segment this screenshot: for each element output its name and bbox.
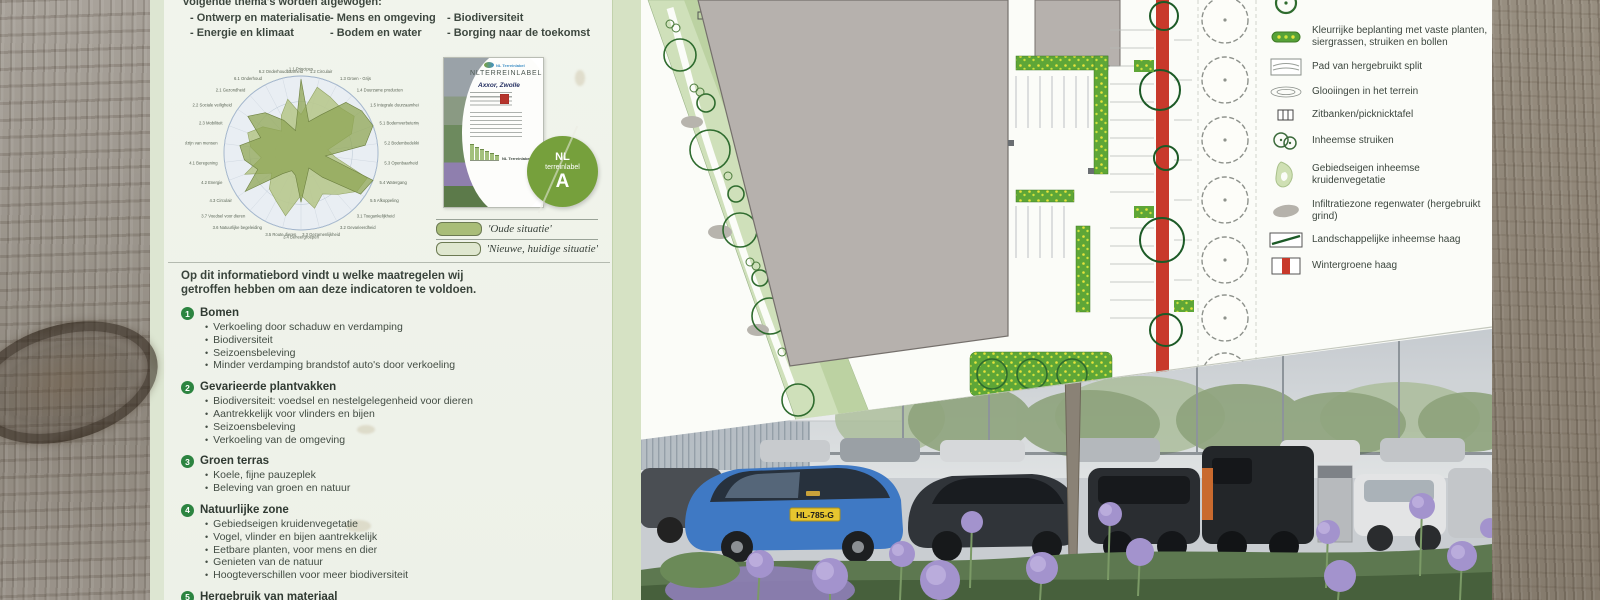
map-legend-item: Gebiedseigen inheemse kruidenvegetatie [1268, 160, 1492, 190]
colorful-bed-icon [1268, 31, 1304, 43]
series-legend-row: 'Nieuwe, huidige situatie' [436, 239, 598, 259]
mini-bar-chart [470, 144, 499, 161]
bullet-item: •Beleving van groen en natuur [205, 482, 611, 495]
bullet-icon: • [205, 556, 208, 569]
measures-list: 1Bomen•Verkoeling door schaduw en verdam… [181, 306, 611, 600]
radar-axis-label: 2.3 Mobiliteit [199, 121, 223, 126]
bullet-item: •Seizoensbeleving [205, 347, 611, 360]
radar-axis-label: 5.1 Bodemverbetering [380, 121, 420, 126]
map-legend-item: Landschappelijke inheemse haag [1268, 232, 1492, 248]
section-title: Hergebruik van materiaal [200, 590, 337, 600]
theme-item: - Mens en omgeving [330, 11, 447, 26]
measures-section: Op dit informatiebord vindt u welke maat… [181, 269, 611, 600]
bullet-item: •Gebiedseigen kruidenvegetatie [205, 518, 611, 531]
path-split-icon [1268, 58, 1304, 76]
license-plate: HL-785-G [796, 510, 834, 520]
chart-series-legend: 'Oude situatie''Nieuwe, huidige situatie… [436, 219, 598, 259]
theme-column: - Mens en omgeving- Bodem en water [330, 11, 447, 41]
section-header: 1Bomen [181, 306, 611, 321]
map-legend-item [1268, 0, 1492, 16]
bullet-text: Gebiedseigen kruidenvegetatie [213, 518, 358, 531]
map-legend-label: Glooiingen in het terrein [1312, 86, 1418, 98]
bullet-icon: • [205, 421, 208, 434]
bullet-text: Beleving van groen en natuur [213, 482, 350, 495]
stain [575, 70, 585, 86]
bullet-icon: • [205, 544, 208, 557]
tree-circle-icon [1268, 0, 1304, 16]
badge-grade: A [556, 172, 570, 192]
bullet-item: •Genieten van de natuur [205, 556, 611, 569]
section-title: Natuurlijke zone [200, 503, 289, 518]
certificate-subtitle: Axxor, Zwolle [478, 82, 540, 89]
bullet-text: Koele, fijne pauzeplek [213, 469, 316, 482]
bullet-text: Genieten van de natuur [213, 556, 323, 569]
bullet-icon: • [205, 434, 208, 447]
bullet-text: Eetbare planten, voor mens en dier [213, 544, 377, 557]
map-legend-item: Inheemse struiken [1268, 131, 1492, 151]
series-label: 'Nieuwe, huidige situatie' [487, 243, 598, 255]
theme-item: - Energie en klimaat [190, 26, 330, 41]
measures-intro: Op dit informatiebord vindt u welke maat… [181, 269, 511, 297]
theme-list: - Ontwerp en materialisatie- Energie en … [190, 11, 607, 41]
bullet-text: Seizoensbeleving [213, 347, 295, 360]
intro-line: volgende thema's worden afgewogen: [183, 0, 613, 8]
blue-car: HL-785-G [685, 465, 903, 563]
theme-column: - Biodiversiteit- Borging naar de toekom… [447, 11, 607, 41]
section-title: Gevarieerde plantvakken [200, 380, 336, 395]
section-header: 2Gevarieerde plantvakken [181, 380, 611, 395]
section-number-badge: 3 [181, 455, 194, 468]
bullet-text: Biodiversiteit [213, 334, 273, 347]
certificate-stamp [500, 94, 509, 104]
bullet-item: •Hoogteverschillen voor meer biodiversit… [205, 569, 611, 582]
radar-axis-label: 5.4 Watergang [380, 180, 408, 185]
bullet-item: •Biodiversiteit: voedsel en nestelgelege… [205, 395, 611, 408]
section-number-badge: 2 [181, 381, 194, 394]
section-title: Bomen [200, 306, 239, 321]
bullet-text: Verkoeling van de omgeving [213, 434, 345, 447]
board-edge [150, 0, 164, 600]
bullet-icon: • [205, 531, 208, 544]
terreinlabel-logo: NL Terreinlabel [484, 62, 540, 68]
series-label: 'Oude situatie' [488, 223, 552, 235]
bullet-icon: • [205, 469, 208, 482]
bullet-icon: • [205, 395, 208, 408]
section-header: 3Groen terras [181, 454, 611, 469]
measure-section: 5Hergebruik van materiaal [181, 590, 611, 600]
bullet-item: •Biodiversiteit [205, 334, 611, 347]
radar-axis-label: 6.1 Onderhoud [234, 76, 263, 81]
radar-axis-label: 5.5 Afkoppeling [370, 198, 399, 203]
theme-item: - Borging naar de toekomst [447, 26, 607, 41]
bullet-icon: • [205, 321, 208, 334]
certificate-content: NL Terreinlabel NLTERREINLABEL Axxor, Zw… [470, 62, 540, 161]
map-legend-label: Zitbanken/picknicktafel [1312, 109, 1413, 121]
radar-axis-label: 5.3 Openbaarheid [384, 161, 418, 166]
map-legend-item: Wintergroene haag [1268, 257, 1492, 275]
divider-line [168, 262, 610, 263]
map-legend-item: Kleurrijke beplanting met vaste planten,… [1268, 25, 1492, 49]
radar-axis-label: 4.1 Beregening [189, 161, 218, 166]
theme-item: - Biodiversiteit [447, 11, 607, 26]
certificate-title: NLTERREINLABEL [470, 70, 540, 77]
logo-icon [484, 62, 494, 68]
radar-axis-label: 1.2 Circulair [310, 69, 333, 74]
bullet-text: Verkoeling door schaduw en verdamping [213, 321, 403, 334]
measure-section: 2Gevarieerde plantvakken•Biodiversiteit:… [181, 380, 611, 446]
map-legend-label: Inheemse struiken [1312, 135, 1394, 147]
bullet-text: Aantrekkelijk voor vlinders en bijen [213, 408, 375, 421]
radar-axis-label: 3.2 Gevarieerdheid [340, 225, 376, 230]
measure-section: 3Groen terras•Koele, fijne pauzeplek•Bel… [181, 454, 611, 495]
information-board-photo: volgende thema's worden afgewogen: - Ont… [0, 0, 1600, 600]
theme-item: - Bodem en water [330, 26, 447, 41]
radar-axis-label: 4.2 Energie [201, 180, 223, 185]
section-number-badge: 4 [181, 504, 194, 517]
radar-axis-label: 3.6 Natuurlijke begeleiding [213, 225, 263, 230]
red-hedge-icon [1268, 257, 1304, 275]
map-legend-label: Wintergroene haag [1312, 260, 1397, 272]
section-header: 5Hergebruik van materiaal [181, 590, 611, 600]
radar-axis-label: 4.3 Circulair [210, 198, 233, 203]
radar-axis-label: 5.2 Bodembedekking [384, 140, 419, 145]
bullet-text: Minder verdamping brandstof auto's door … [213, 359, 455, 372]
series-swatch [436, 222, 482, 236]
bullet-item: •Aantrekkelijk voor vlinders en bijen [205, 408, 611, 421]
bullet-item: •Verkoeling door schaduw en verdamping [205, 321, 611, 334]
measure-section: 4Natuurlijke zone•Gebiedseigen kruidenve… [181, 503, 611, 582]
bullet-text: Vogel, vlinder en bijen aantrekkelijk [213, 531, 377, 544]
wooden-post-right [1492, 0, 1600, 600]
section-title: Groen terras [200, 454, 269, 469]
radar-axis-label: 1.3 Groen - Grijs [340, 76, 371, 81]
shrubs-icon [1268, 131, 1304, 151]
bullet-item: •Vogel, vlinder en bijen aantrekkelijk [205, 531, 611, 544]
bullet-item: •Eetbare planten, voor mens en dier [205, 544, 611, 557]
measure-section: 1Bomen•Verkoeling door schaduw en verdam… [181, 306, 611, 372]
radar-axis-label: 2.4 Welzijn van mensen [185, 140, 218, 145]
theme-column: - Ontwerp en materialisatie- Energie en … [190, 11, 330, 41]
map-legend-item: Infiltratiezone regenwater (hergebruikt … [1268, 199, 1492, 223]
bullet-text: Biodiversiteit: voedsel en nestelgelegen… [213, 395, 473, 408]
bullet-item: •Seizoensbeleving [205, 421, 611, 434]
gravel-blob-icon [1268, 203, 1304, 219]
bullet-item: •Minder verdamping brandstof auto's door… [205, 359, 611, 372]
bullet-text: Hoogteverschillen voor meer biodiversite… [213, 569, 408, 582]
radar-axis-label: 2.1 Gezondheid [216, 88, 246, 93]
series-swatch [436, 242, 481, 256]
section-number-badge: 1 [181, 307, 194, 320]
map-legend: Kleurrijke beplanting met vaste planten,… [1268, 0, 1492, 275]
bullet-icon: • [205, 518, 208, 531]
map-legend-item: Glooiingen in het terrein [1268, 85, 1492, 99]
bullet-icon: • [205, 347, 208, 360]
herb-blob-icon [1268, 160, 1304, 190]
series-legend-row: 'Oude situatie' [436, 219, 598, 239]
bullet-text: Seizoensbeleving [213, 421, 295, 434]
radar-axis-label: 3.1 Toegankelijkheid [357, 213, 396, 218]
section-number-badge: 5 [181, 591, 194, 600]
contours-icon [1268, 85, 1304, 99]
theme-item: - Ontwerp en materialisatie [190, 11, 330, 26]
bullet-icon: • [205, 569, 208, 582]
map-legend-item: Pad van hergebruikt split [1268, 58, 1492, 76]
section-header: 4Natuurlijke zone [181, 503, 611, 518]
bullet-item: •Verkoeling van de omgeving [205, 434, 611, 447]
bench-icon [1268, 108, 1304, 122]
map-legend-label: Kleurrijke beplanting met vaste planten,… [1312, 25, 1492, 49]
bullet-item: •Koele, fijne pauzeplek [205, 469, 611, 482]
bullet-icon: • [205, 482, 208, 495]
radar-chart: 1.1 Principes1.2 Circulair1.3 Groen - Gr… [185, 51, 419, 257]
terreinlabel-badge: NL terreinlabel A [527, 136, 598, 207]
radar-axis-label: 1.4 Duurzame producten [357, 88, 404, 93]
map-legend-label: Landschappelijke inheemse haag [1312, 234, 1460, 246]
logo-text: NL Terreinlabel [496, 63, 525, 68]
map-legend-label: Infiltratiezone regenwater (hergebruikt … [1312, 199, 1492, 223]
radar-axis-label: 1.5 Integrale duurzaamheid [370, 103, 419, 108]
bullet-icon: • [205, 408, 208, 421]
radar-axis-label: 2.2 Sociale veiligheid [193, 103, 233, 108]
radar-axis-label: 3.7 Voedsel voor dieren [201, 213, 246, 218]
certificate-score-table [470, 112, 522, 138]
map-legend-item: Zitbanken/picknicktafel [1268, 108, 1492, 122]
bullet-icon: • [205, 359, 208, 372]
board-green-strip [612, 0, 641, 600]
map-legend-label: Gebiedseigen inheemse kruidenvegetatie [1312, 163, 1492, 187]
wooden-post-left [0, 0, 150, 600]
map-legend-label: Pad van hergebruikt split [1312, 61, 1422, 73]
radar-axis-label: 3.5 Route dieren [265, 232, 297, 237]
radar-axis-label: 6.2 Onderhoudbaarheid [259, 69, 304, 74]
bullet-icon: • [205, 334, 208, 347]
hedge-line-icon [1268, 232, 1304, 248]
